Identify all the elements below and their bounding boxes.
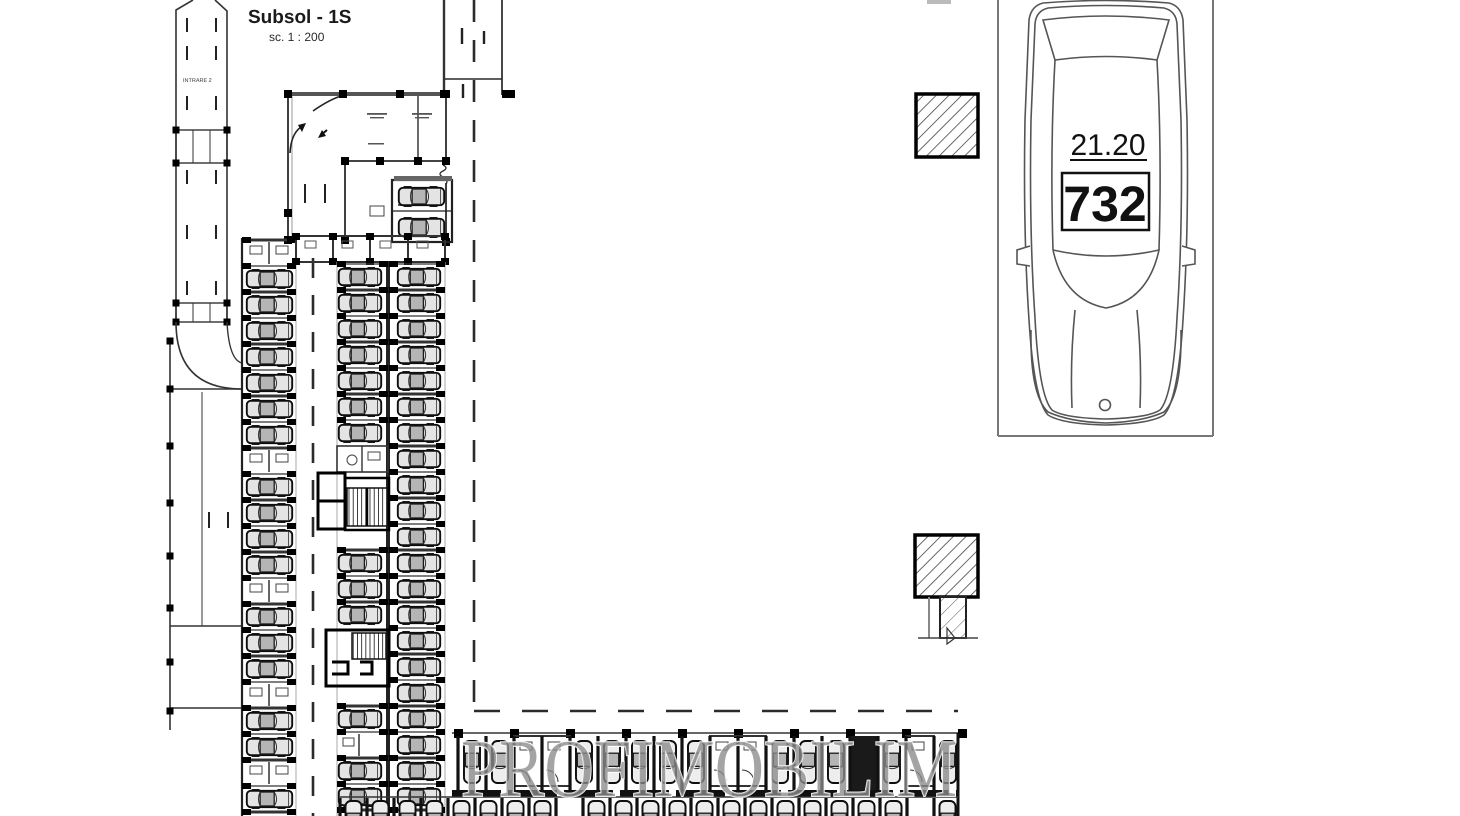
svg-text:732: 732	[1063, 176, 1146, 232]
svg-text:Subsol - 1S: Subsol - 1S	[248, 7, 351, 28]
svg-text:INTRARE 2: INTRARE 2	[183, 78, 212, 84]
svg-text:21.20: 21.20	[1070, 129, 1145, 162]
svg-text:PROFIMOBILIM: PROFIMOBILIM	[461, 723, 957, 814]
svg-text:sc. 1 : 200: sc. 1 : 200	[269, 30, 325, 44]
